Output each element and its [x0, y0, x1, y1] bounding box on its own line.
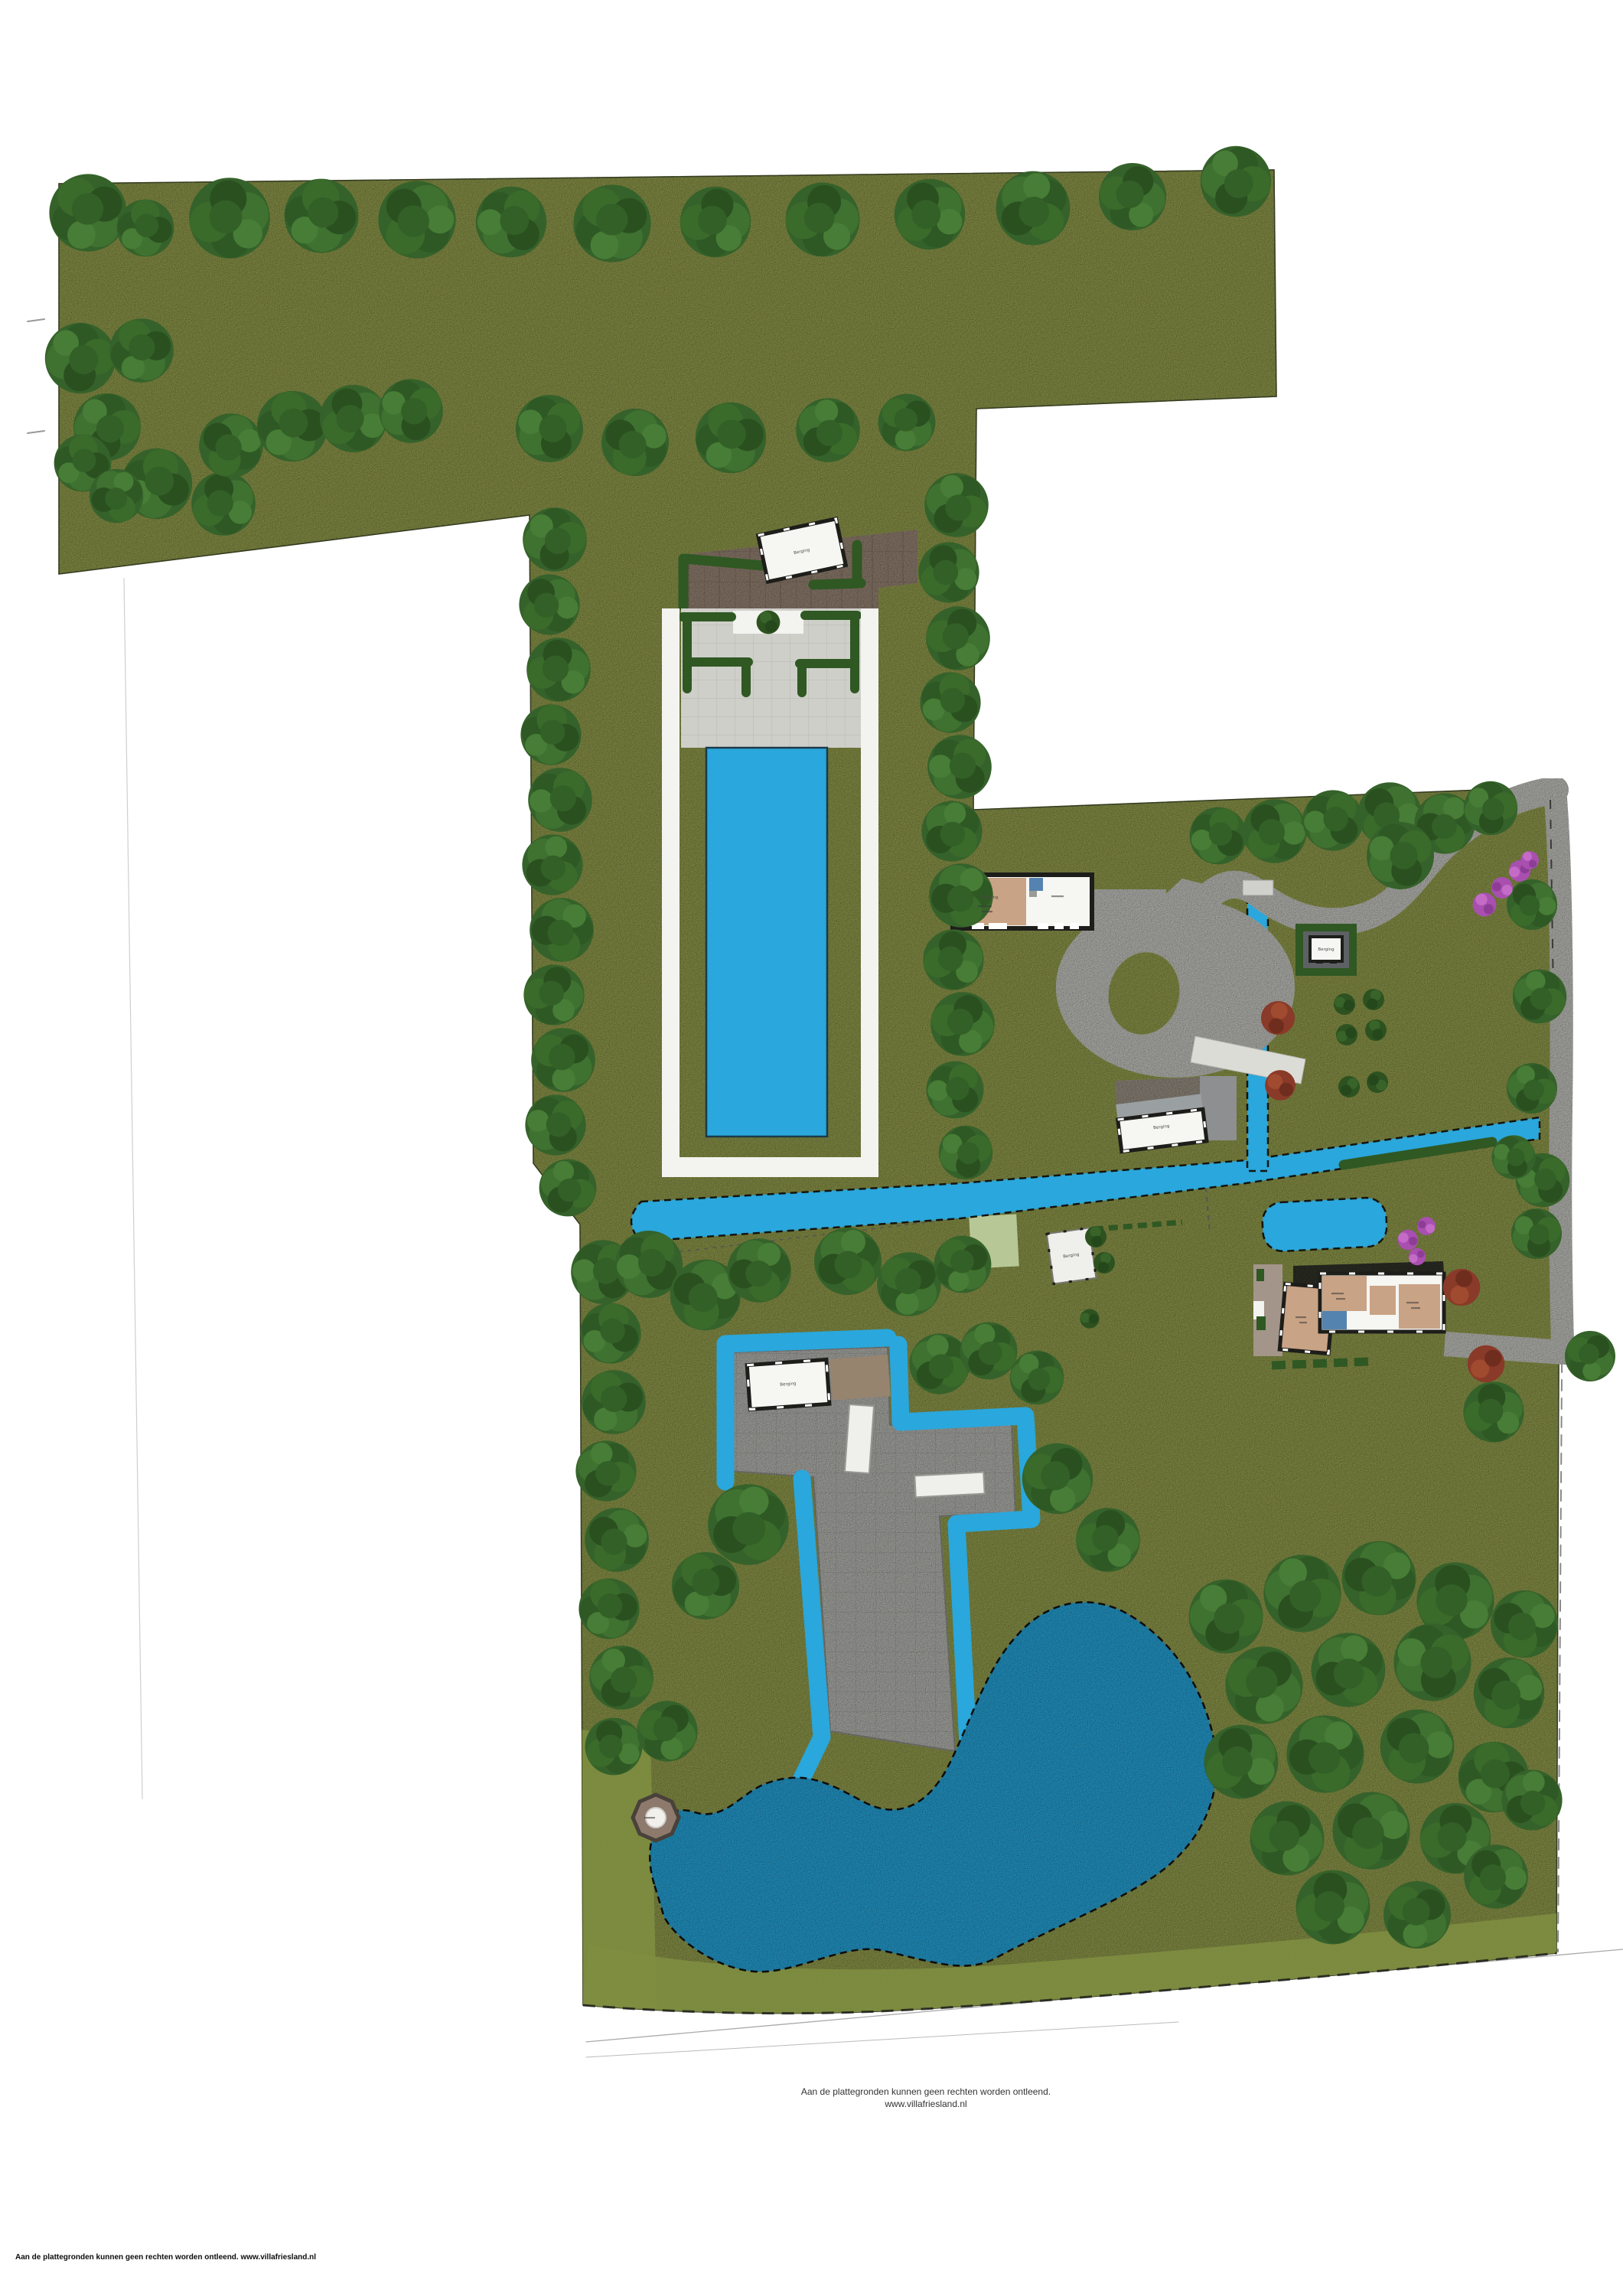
pool-side-path-left	[662, 608, 680, 1177]
field-barn-group	[1116, 1076, 1237, 1152]
footer-disclaimer: Aan de plattegronden kunnen geen rechten…	[15, 2253, 316, 2262]
tree	[1380, 1710, 1455, 1784]
swimming-pool	[706, 748, 827, 1137]
pool-end-path	[662, 1157, 878, 1177]
octagon-well	[633, 1795, 679, 1841]
tiny-text-mark	[982, 911, 992, 912]
tiny-text-mark	[1051, 895, 1064, 897]
barn-steps	[1029, 891, 1037, 897]
planting-bed	[1256, 1316, 1266, 1330]
tiny-text-mark	[1299, 1322, 1307, 1323]
barn-room-label: Berging	[982, 895, 998, 900]
disclaimer-note: Aan de plattegronden kunnen geen rechten…	[781, 2086, 1071, 2110]
tree	[796, 398, 860, 462]
tiny-text-mark	[1331, 1293, 1344, 1294]
canal-bridge	[1243, 880, 1273, 895]
white-structure-vertical	[845, 1404, 874, 1473]
right-edge-path	[1555, 790, 1563, 1344]
house-access-path	[1445, 1344, 1575, 1353]
tiny-text-mark	[1336, 1298, 1345, 1300]
brown-paved-strip	[829, 1355, 891, 1400]
shed-door	[1316, 960, 1323, 964]
tiny-text-mark	[1406, 1302, 1419, 1303]
tiny-text-mark	[1411, 1307, 1420, 1309]
site-plan-page: Berging Berging Berging Berging Berging …	[0, 0, 1623, 2296]
farmhouse-room-blue	[1322, 1311, 1347, 1329]
disclaimer-line-2: www.villafriesland.nl	[781, 2099, 1071, 2111]
window-gap	[989, 923, 1007, 929]
farmhouse-room	[1370, 1286, 1396, 1315]
farmhouse-room	[1399, 1284, 1440, 1329]
farmhouse-room	[1322, 1276, 1367, 1311]
tiny-text-mark	[1295, 1316, 1306, 1318]
site-plan-map: Berging Berging Berging Berging Berging …	[0, 0, 1623, 2296]
tree	[1302, 790, 1363, 850]
window-gap	[1054, 923, 1064, 929]
tiny-text-mark	[644, 1817, 655, 1818]
garden-shed-label: Berging	[1318, 947, 1334, 952]
window-gap	[1070, 923, 1079, 929]
window-gap	[1038, 923, 1048, 929]
planting-bed	[1256, 1269, 1264, 1281]
farm-pond	[1261, 1197, 1387, 1252]
tiny-text-mark	[978, 905, 992, 907]
white-structure-horizontal	[914, 1473, 984, 1498]
pool-side-path-right	[861, 608, 878, 1177]
disclaimer-line-1: Aan de plattegronden kunnen geen rechten…	[781, 2086, 1071, 2099]
shed-door	[1330, 960, 1337, 964]
barn-room-blue	[1029, 878, 1043, 891]
